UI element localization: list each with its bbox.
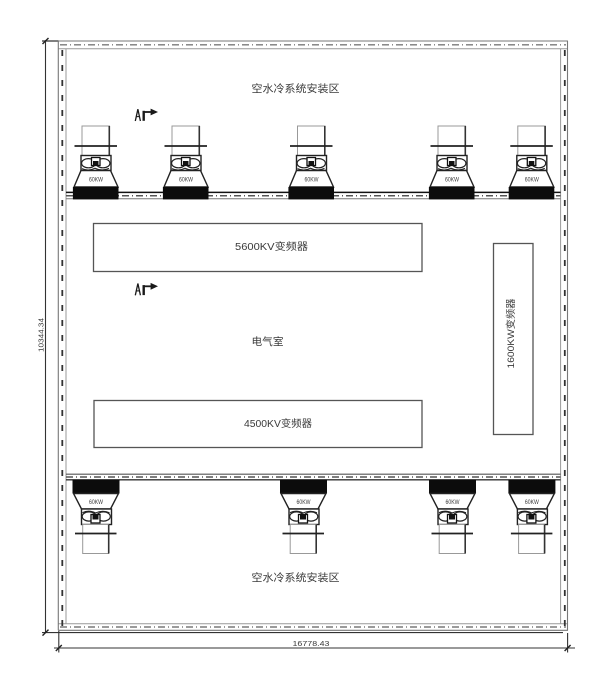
svg-text:电气室: 电气室	[252, 335, 284, 348]
svg-text:16778.43: 16778.43	[293, 641, 330, 648]
svg-text:空水冷系统安装区: 空水冷系统安装区	[252, 82, 340, 95]
svg-text:1600KW变频器: 1600KW变频器	[505, 298, 517, 369]
svg-text:4500KV变频器: 4500KV变频器	[244, 417, 312, 430]
svg-text:5600KV变频器: 5600KV变频器	[235, 240, 308, 253]
svg-text:空水冷系统安装区: 空水冷系统安装区	[252, 571, 340, 584]
svg-text:10344.34: 10344.34	[39, 318, 46, 352]
